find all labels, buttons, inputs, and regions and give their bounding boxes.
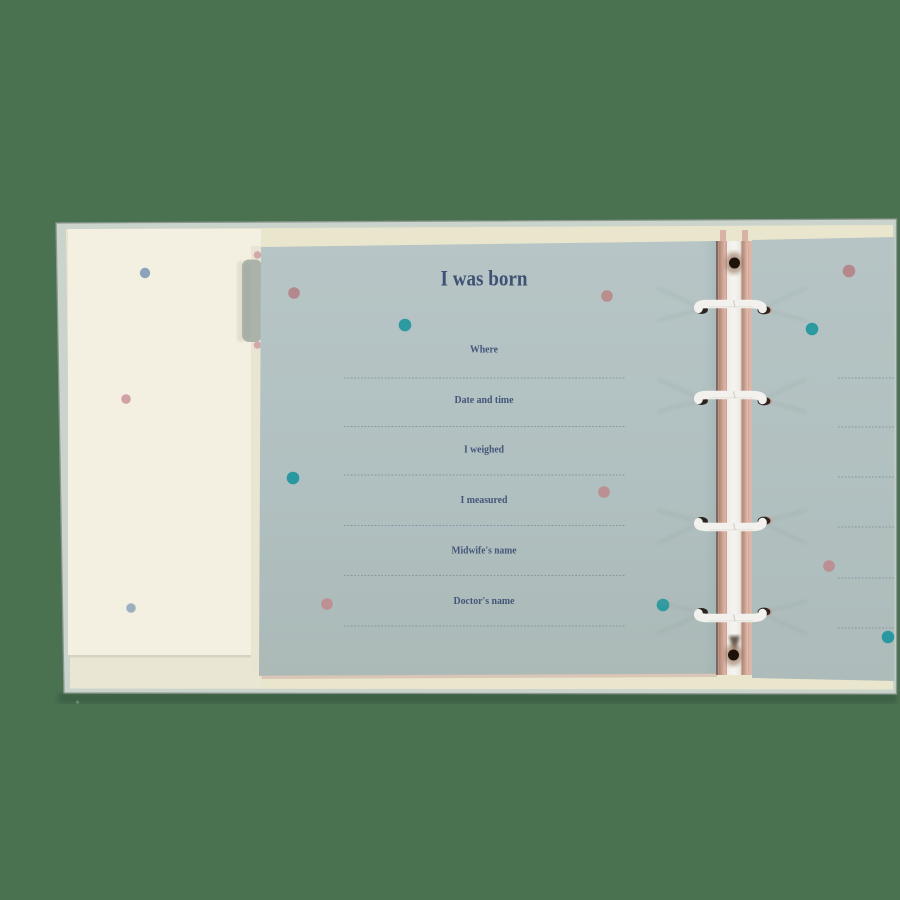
svg-text:Where: Where (470, 344, 498, 356)
svg-text:Doctor's name: Doctor's name (454, 595, 515, 607)
svg-text:Midwife's name: Midwife's name (452, 545, 517, 557)
svg-text:I measured: I measured (461, 494, 508, 506)
svg-text:Date and time: Date and time (455, 394, 514, 406)
svg-text:I was born: I was born (441, 266, 528, 291)
svg-text:I weighed: I weighed (464, 444, 504, 456)
